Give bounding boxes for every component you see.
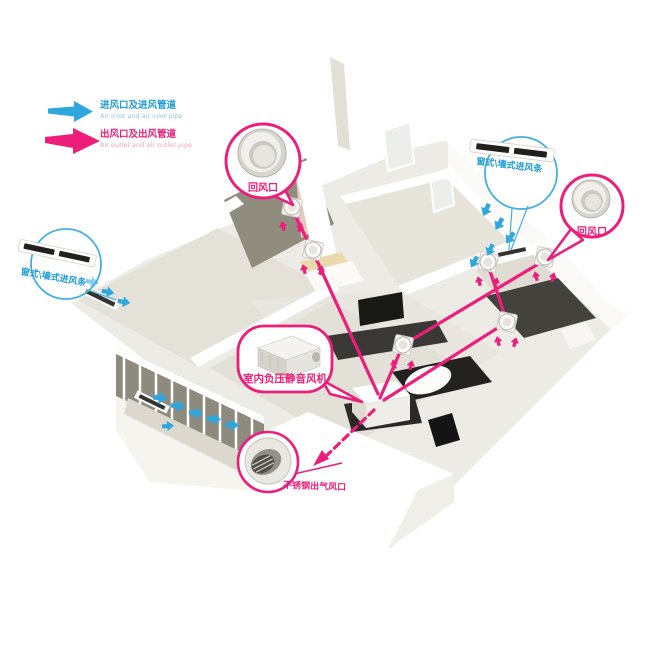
steel-outlet-icon bbox=[245, 438, 291, 484]
legend-outlet-sublabel: Air outlet and air outlet pipe bbox=[100, 142, 192, 149]
return-air-right-label: 回风口 bbox=[566, 227, 618, 238]
fan-unit-label: 室内负压静音风机 bbox=[240, 374, 330, 386]
legend-inlet-sublabel: Air inlet and air inlet pipe bbox=[100, 113, 183, 120]
window bbox=[384, 122, 414, 171]
legend-inlet-arrow-icon bbox=[48, 101, 93, 122]
callout-return-air-right bbox=[548, 175, 623, 260]
ventilation-diagram-page: 进风口及进风管道 Air inlet and air inlet pipe 出风… bbox=[0, 0, 650, 656]
legend-outlet-arrow-icon bbox=[45, 128, 100, 154]
legend bbox=[45, 101, 100, 154]
ventilation-diagram bbox=[0, 0, 650, 656]
legend-outlet-label: 出风口及出风管道 bbox=[100, 130, 176, 140]
legend-inlet-label: 进风口及进风管道 bbox=[100, 101, 176, 111]
return-vent-icon bbox=[238, 129, 286, 177]
return-air-top-label: 回风口 bbox=[237, 183, 289, 194]
return-vent-icon bbox=[572, 180, 610, 218]
